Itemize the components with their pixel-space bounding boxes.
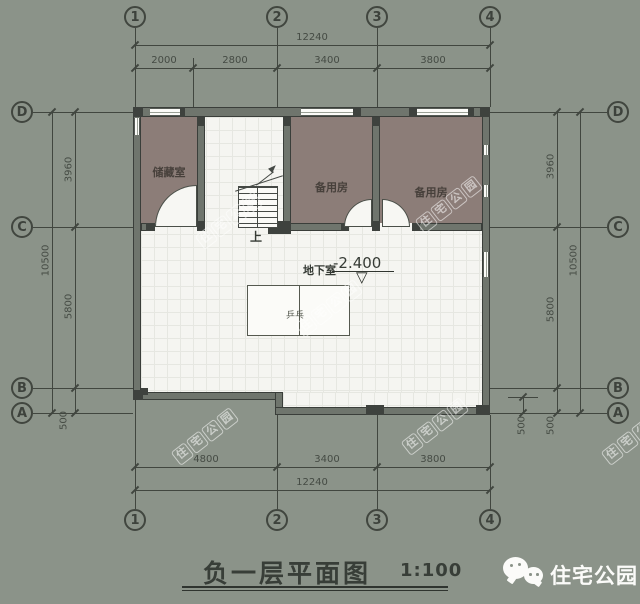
dim-bottom-seg3: 3800: [413, 454, 453, 465]
title-underline-1: [182, 586, 448, 588]
dim-top-seg4: 3800: [413, 55, 453, 66]
column-bottom-mid: [366, 405, 384, 415]
title-underline-2: [182, 590, 448, 591]
window-right-3: [483, 252, 489, 277]
grid-bubble-4-bottom: 4: [479, 509, 501, 531]
dim-right-seg1: 3960: [546, 147, 557, 187]
dim-top-total: 12240: [292, 32, 332, 43]
column-v3-top: [372, 117, 380, 126]
dim-line-bottom-total: [135, 490, 490, 491]
grid-bubble-1-top: 1: [124, 6, 146, 28]
grid-line-2-bottom: [277, 415, 278, 509]
grid-bubble-D-left: D: [11, 101, 33, 123]
grid-bubble-B-right: B: [607, 377, 629, 399]
page-title-scale: 1:100: [400, 560, 462, 581]
wall-exterior-bottom-left: [133, 392, 283, 400]
wall-interior-c-seg2: [285, 223, 349, 231]
grid-line-D-right: [490, 112, 607, 113]
dim-line-left-outer: [52, 112, 53, 413]
room-label-spare1: 备用房: [291, 179, 372, 195]
column-top-right: [480, 107, 490, 117]
window-top-3: [417, 108, 468, 116]
grid-bubble-A-left: A: [11, 402, 33, 424]
window-top-1: [150, 108, 180, 116]
wechat-icon: [502, 554, 546, 590]
column-v2-top: [283, 117, 291, 126]
wall-interior-v1: [197, 117, 205, 231]
dim-line-top-total: [135, 45, 490, 46]
dim-bottom-total: 12240: [292, 477, 332, 488]
column-top-wall-2: [353, 107, 361, 117]
grid-bubble-3-top: 3: [366, 6, 388, 28]
dim-top-seg1: 2000: [144, 55, 184, 66]
dim-top-seg3: 3400: [307, 55, 347, 66]
dim-line-top-segments: [135, 68, 490, 69]
level-floor-label: 地下室: [303, 262, 336, 278]
dim-left-seg3: 500: [59, 401, 70, 441]
window-right-1: [483, 145, 489, 155]
wechat-eye: [518, 563, 521, 566]
column-bottom-left-inner: [141, 388, 148, 395]
column-top-wall-3: [409, 107, 417, 117]
window-top-2: [301, 108, 353, 116]
dim-left-seg2: 5800: [64, 287, 75, 327]
wall-interior-v3: [372, 117, 380, 231]
dim-line-bottom-segments: [135, 467, 490, 468]
level-triangle-icon: ▽: [356, 268, 368, 286]
grid-bubble-C-left: C: [11, 216, 33, 238]
dim-right-total: 10500: [569, 241, 580, 281]
grid-bubble-C-right: C: [607, 216, 629, 238]
grid-line-C-right: [490, 227, 607, 228]
column-v3-bottom: [372, 221, 380, 231]
grid-line-1-bottom: [135, 400, 136, 509]
column-v1-top: [197, 117, 205, 126]
dim-right-seg3: 500: [546, 406, 557, 446]
room-label-storage: 储藏室: [141, 164, 197, 180]
window-left-1: [134, 118, 140, 135]
grid-bubble-1-bottom: 1: [124, 509, 146, 531]
grid-line-3-bottom: [377, 415, 378, 509]
grid-line-B-left: [33, 388, 133, 389]
column-door-hinge-1: [146, 223, 155, 231]
dim-top-seg2: 2800: [215, 55, 255, 66]
dim-line-right-inner: [557, 112, 558, 413]
grid-line-C-left: [33, 227, 133, 228]
wechat-eye: [510, 564, 513, 567]
dim-bottom-seg2: 3400: [307, 454, 347, 465]
dim-right-seg2: 5800: [546, 290, 557, 330]
grid-bubble-3-bottom: 3: [366, 509, 388, 531]
brand-name: 住宅公园: [550, 560, 638, 590]
dim-left-total: 10500: [41, 241, 52, 281]
grid-line-4-bottom: [490, 415, 491, 509]
column-top-left: [133, 107, 143, 117]
window-right-2: [483, 185, 489, 197]
wall-interior-v2: [283, 117, 291, 231]
dim-line-left-inner: [75, 112, 76, 413]
column-bottom-right: [476, 405, 490, 415]
dim-right-extra: 500: [517, 406, 528, 446]
grid-bubble-A-right: A: [607, 402, 629, 424]
grid-bubble-D-right: D: [607, 101, 629, 123]
wall-exterior-left: [133, 107, 141, 400]
wechat-eye: [536, 573, 539, 576]
dim-line-right-outer: [580, 112, 581, 413]
grid-line-B-right: [490, 388, 607, 389]
grid-bubble-2-bottom: 2: [266, 509, 288, 531]
page-title: 负一层平面图: [203, 554, 371, 590]
dim-left-seg1: 3960: [64, 150, 75, 190]
stairs-up-label: 上: [247, 228, 265, 245]
wechat-eye: [529, 573, 532, 576]
grid-bubble-2-top: 2: [266, 6, 288, 28]
grid-bubble-B-left: B: [11, 377, 33, 399]
floor-plan-canvas: 12240 2000 2800 3400 3800 4800 3400 3800…: [0, 0, 640, 604]
grid-bubble-4-top: 4: [479, 6, 501, 28]
